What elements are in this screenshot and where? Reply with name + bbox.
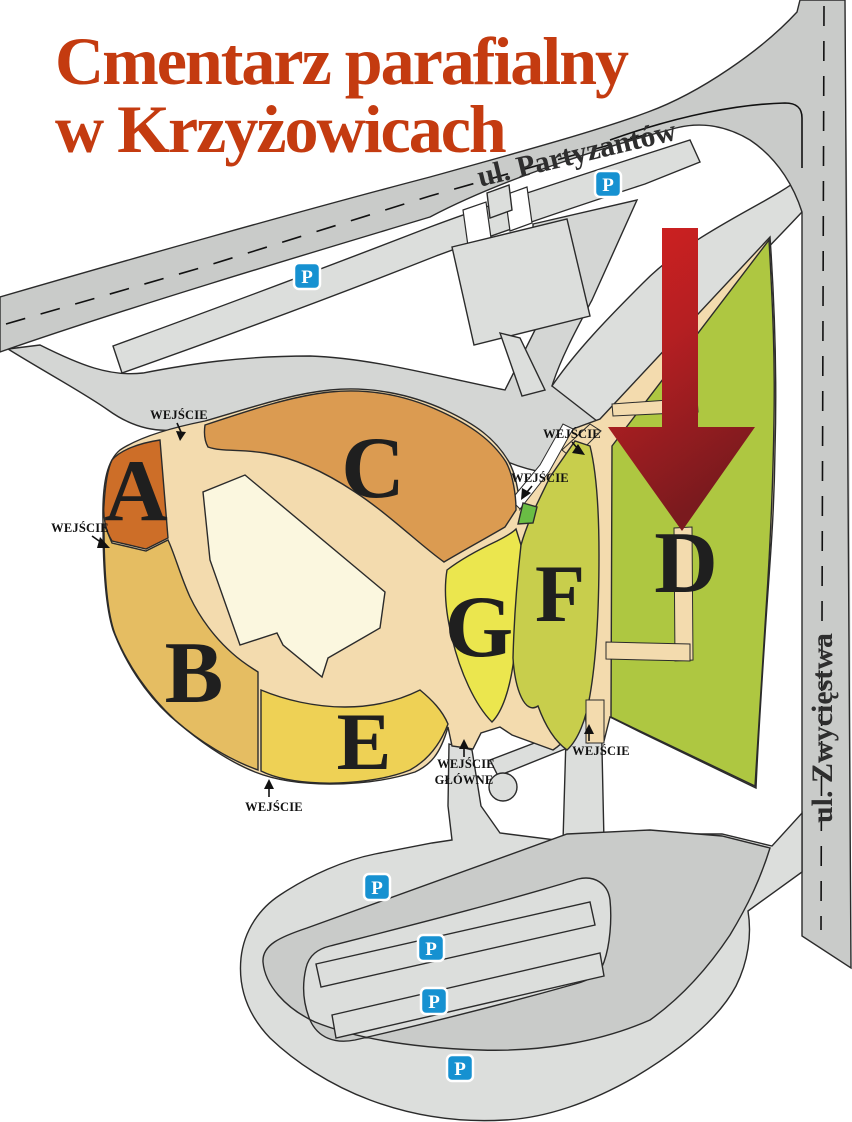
parking-sign: P	[595, 171, 621, 197]
parking-sign: P	[421, 988, 447, 1014]
section-g-letter: G	[445, 579, 513, 676]
parking-sign: P	[447, 1055, 473, 1081]
map-canvas: P P P P P P ul. Partyzantów ul. Zwycięst…	[0, 0, 852, 1122]
parking-sign-letter: P	[425, 939, 437, 960]
section-e-letter: E	[337, 696, 392, 787]
section-b-letter: B	[165, 625, 224, 722]
parking-sign: P	[294, 263, 320, 289]
parking-sign-letter: P	[428, 992, 440, 1013]
entrance-label: WEJŚCIE	[511, 471, 569, 485]
parking-sign-letter: P	[602, 175, 614, 196]
entrance-label: WEJŚCIE	[51, 521, 109, 535]
map-title-line1: Cmentarz parafialny	[55, 23, 629, 99]
parking-sign-letter: P	[371, 878, 383, 899]
entrance-west: WEJŚCIE	[51, 521, 110, 548]
map-title-line2: w Krzyżowicach	[55, 91, 506, 167]
street-label-zwyciestwa: ul. Zwycięstwa	[806, 633, 839, 823]
section-d-letter: D	[654, 515, 718, 612]
entrance-label: WEJŚCIE	[543, 427, 601, 441]
entrance-main-label-line1: WEJŚCIE	[437, 757, 495, 771]
entrance-label: WEJŚCIE	[245, 800, 303, 814]
section-a-letter: A	[104, 443, 168, 540]
entrance-label: WEJŚCIE	[572, 744, 630, 758]
parking-sign: P	[364, 874, 390, 900]
parking-sign: P	[418, 935, 444, 961]
section-f-letter: F	[535, 548, 585, 639]
entrance-main: WEJŚCIE GŁÓWNE	[435, 739, 495, 787]
entrance-label: WEJŚCIE	[150, 408, 208, 422]
parking-sign-letter: P	[454, 1059, 466, 1080]
parking-sign-letter: P	[301, 267, 313, 288]
entrance-south: WEJŚCIE	[245, 779, 303, 814]
section-c-letter: C	[341, 420, 405, 517]
cemetery-map: P P P P P P ul. Partyzantów ul. Zwycięst…	[0, 0, 852, 1122]
path-in-d-horizontal	[606, 642, 690, 661]
entrance-main-label-line2: GŁÓWNE	[435, 773, 494, 787]
